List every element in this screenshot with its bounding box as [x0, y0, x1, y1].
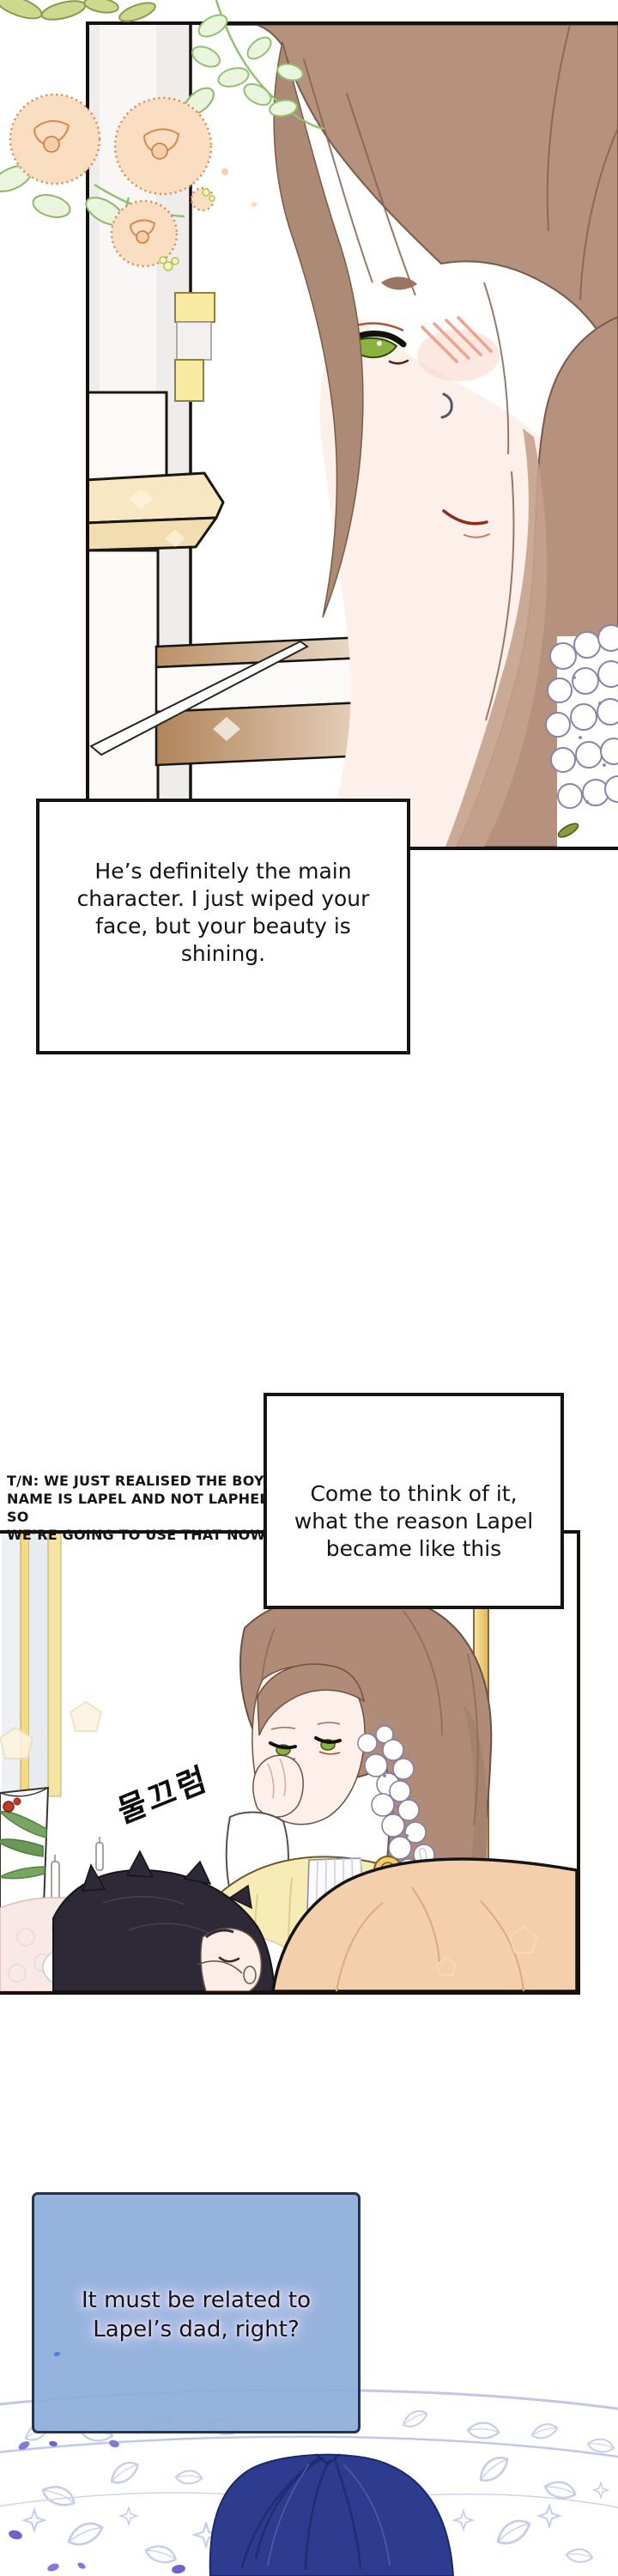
- speech-bubble-1-text: He’s definitely the main character. I ju…: [77, 858, 370, 968]
- bubble1-line3: face, but your beauty is: [77, 913, 370, 940]
- ink-speck: [53, 2351, 60, 2357]
- bubble3-line2: Lapel’s dad, right?: [82, 2315, 311, 2344]
- bubble1-line2: character. I just wiped your: [77, 885, 370, 913]
- panel-1: [86, 21, 618, 850]
- tn-line3: WE’RE GOING TO USE THAT NOW: [7, 1526, 290, 1544]
- bubble3-line1: It must be related to: [82, 2286, 311, 2315]
- speech-bubble-2-text: Come to think of it, what the reason Lap…: [294, 1480, 533, 1563]
- speech-bubble-2: Come to think of it, what the reason Lap…: [264, 1393, 564, 1609]
- bubble2-line3: became like this: [294, 1535, 533, 1563]
- bubble1-line1: He’s definitely the main: [77, 858, 370, 885]
- tn-line2: NAME IS LAPEL AND NOT LAPHELLE SO: [7, 1490, 290, 1526]
- bubble2-line2: what the reason Lapel: [294, 1508, 533, 1535]
- bubble2-line1: Come to think of it,: [294, 1480, 533, 1508]
- speech-bubble-3: It must be related to Lapel’s dad, right…: [32, 2192, 360, 2433]
- speech-bubble-1: He’s definitely the main character. I ju…: [36, 799, 410, 1054]
- translator-note: T/N: WE JUST REALISED THE BOY’S NAME IS …: [7, 1472, 290, 1544]
- purple-petals: [8, 2439, 239, 2576]
- tn-line1: T/N: WE JUST REALISED THE BOY’S: [7, 1472, 290, 1490]
- navy-haired-figure: [210, 2454, 453, 2576]
- flower-vase: [0, 1788, 48, 1910]
- bubble1-line4: shining.: [77, 940, 370, 968]
- panel-1-illustration: [89, 25, 618, 847]
- comic-page: He’s definitely the main character. I ju…: [0, 0, 618, 2576]
- speech-bubble-3-text: It must be related to Lapel’s dad, right…: [82, 2286, 311, 2344]
